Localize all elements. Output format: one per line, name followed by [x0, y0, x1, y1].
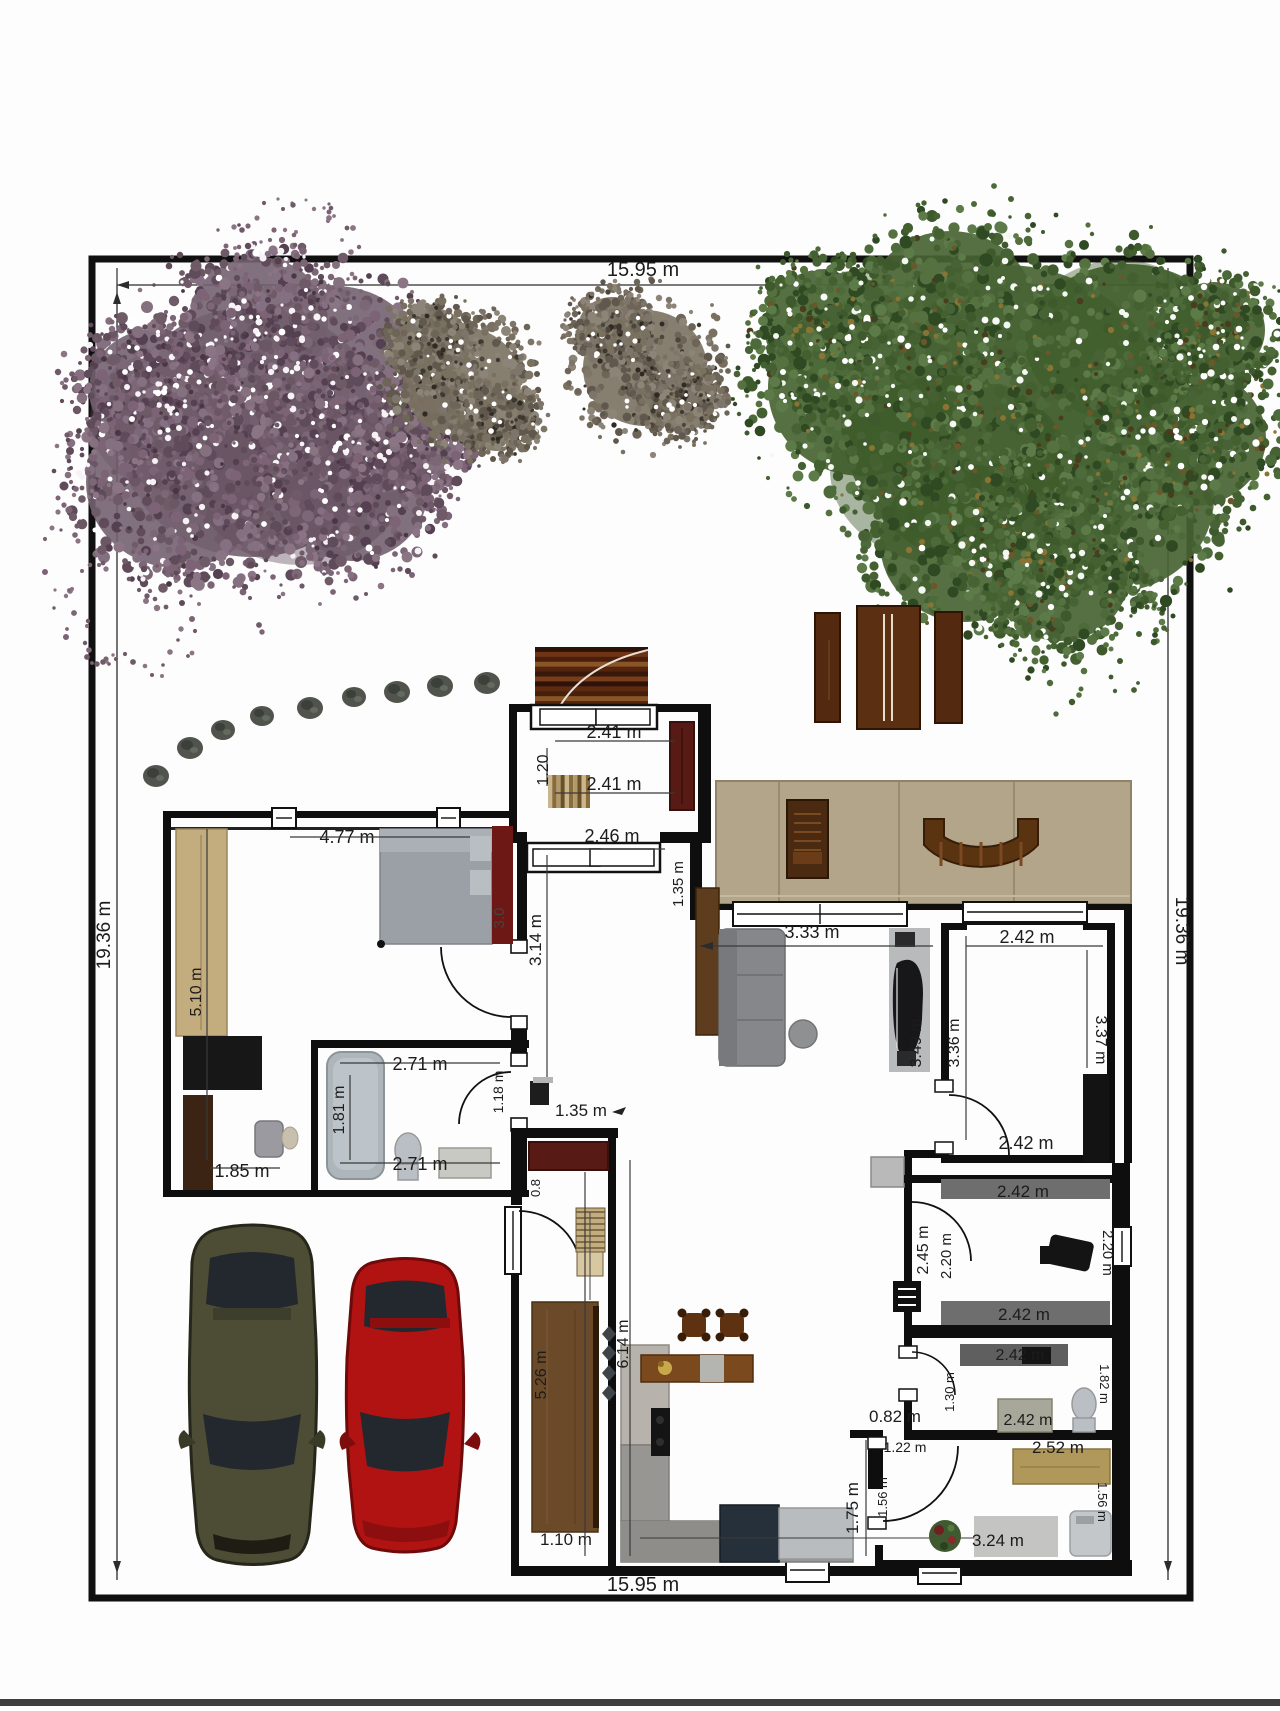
svg-text:19.36 m: 19.36 m: [94, 901, 115, 970]
svg-text:15.95 m: 15.95 m: [607, 1574, 679, 1596]
svg-text:19.36 m: 19.36 m: [1171, 897, 1192, 966]
svg-text:15.95 m: 15.95 m: [607, 259, 679, 281]
